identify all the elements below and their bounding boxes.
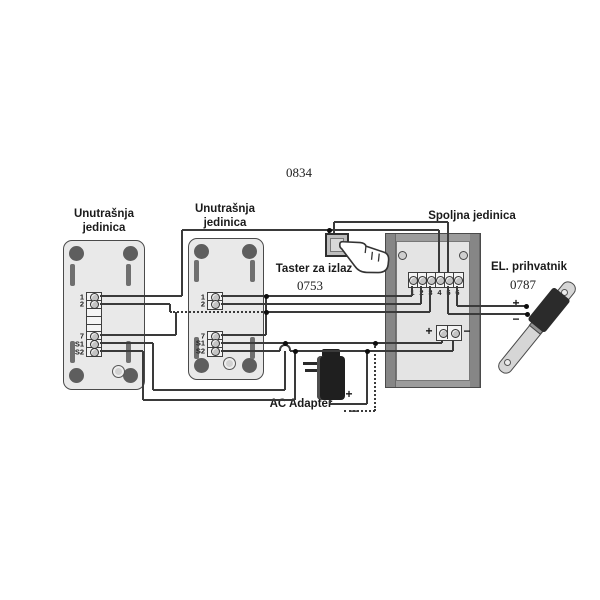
wire (448, 313, 527, 315)
terminal-screw-icon (211, 347, 220, 356)
wire (334, 221, 448, 223)
adapter-plus-sign: + (345, 387, 352, 401)
exit-button-code: 0753 (297, 278, 323, 294)
wire (265, 296, 267, 335)
terminal-cell (87, 317, 101, 325)
wire (266, 311, 430, 313)
wire (143, 399, 295, 401)
junction-dot (373, 341, 378, 346)
junction-dot (524, 304, 529, 309)
mounting-slot (70, 264, 75, 286)
wire (152, 343, 154, 390)
terminal-screw-icon (439, 329, 448, 338)
junction-dot (264, 294, 269, 299)
junction-dot (365, 349, 370, 354)
wire (330, 403, 367, 405)
terminal-screw-icon (409, 276, 418, 285)
wire (221, 350, 280, 352)
mounting-slot (250, 337, 255, 359)
terminal-screw-icon (454, 276, 463, 285)
wire (100, 350, 143, 352)
wire (344, 410, 375, 412)
wire (456, 286, 458, 306)
wire (221, 334, 266, 336)
wire (374, 343, 376, 411)
junction-dot (327, 228, 332, 233)
junction-dot (264, 310, 269, 315)
wire (420, 286, 422, 304)
corner-screw-icon (242, 358, 257, 373)
corner-screw-icon (194, 358, 209, 373)
terminal-cell (87, 309, 101, 317)
wire (447, 222, 449, 272)
terminal-screw-icon (436, 276, 445, 285)
wire (142, 351, 144, 400)
mounting-slot (126, 264, 131, 286)
model-code: 0834 (286, 165, 312, 181)
screw-icon (459, 251, 468, 260)
wire (182, 229, 439, 231)
terminal-label: S2 (75, 347, 84, 356)
corner-screw-icon (123, 368, 138, 383)
mounting-slot (126, 341, 131, 363)
wire (100, 342, 153, 344)
screw-icon (398, 251, 407, 260)
corner-screw-icon (194, 244, 209, 259)
mounting-slot (194, 260, 199, 282)
wire (290, 350, 453, 352)
adapter-prong (305, 369, 317, 372)
terminal-screw-icon (418, 276, 427, 285)
wire (447, 286, 449, 314)
terminal-screw-icon (211, 300, 220, 309)
terminal-label: 2 (201, 300, 205, 309)
wire (457, 305, 526, 307)
wire (175, 312, 177, 335)
outdoor-terminal-number: 4 (437, 288, 441, 297)
strike-plus-sign: + (512, 296, 519, 310)
terminal-label: S2 (196, 347, 205, 356)
wire (452, 340, 454, 351)
terminal-screw-icon (427, 276, 436, 285)
wire (429, 286, 431, 312)
wire (100, 295, 182, 297)
terminal-screw-icon (90, 300, 99, 309)
indoor-unit-a-label-line1: Unutrašnja (74, 208, 134, 220)
ac-adapter (317, 356, 345, 400)
junction-dot (525, 312, 530, 317)
cable-hole (223, 357, 236, 370)
wire (170, 311, 266, 313)
cable-hole (112, 365, 125, 378)
wire (221, 303, 421, 305)
wire (100, 303, 170, 305)
indoor-unit-b-label-line2: jedinica (204, 217, 247, 229)
wire (411, 286, 413, 296)
wire (441, 340, 443, 343)
terminal-label: 2 (80, 300, 84, 309)
wire (438, 230, 440, 272)
junction-dot (293, 349, 298, 354)
wire (333, 222, 335, 233)
terminal-screw-icon (90, 348, 99, 357)
strike-code: 0787 (510, 277, 536, 293)
mounting-slot (250, 260, 255, 282)
corner-screw-icon (69, 368, 84, 383)
wiring-diagram: 0834 Unutrašnja jedinica Unutrašnja jedi… (0, 0, 600, 600)
wire (221, 342, 442, 344)
corner-screw-icon (69, 246, 84, 261)
strike-label: EL. prihvatnik (491, 261, 567, 273)
junction-dot (283, 341, 288, 346)
power-block-minus-sign: − (463, 324, 470, 338)
terminal-screw-icon (451, 329, 460, 338)
pointing-hand-icon (335, 233, 393, 276)
wire (153, 389, 285, 391)
wire (366, 351, 368, 404)
wire (221, 295, 412, 297)
indoor-unit-b-label-line1: Unutrašnja (195, 203, 255, 215)
wire (181, 230, 183, 296)
indoor-unit-a-label-line2: jedinica (83, 222, 126, 234)
corner-screw-icon (123, 246, 138, 261)
wire (294, 351, 296, 400)
outdoor-right-wall (470, 234, 480, 387)
strike-hole (504, 359, 511, 366)
wire (100, 334, 176, 336)
power-block-plus-sign: + (425, 324, 432, 338)
adapter-prong (303, 362, 317, 365)
terminal-screw-icon (445, 276, 454, 285)
corner-screw-icon (242, 244, 257, 259)
